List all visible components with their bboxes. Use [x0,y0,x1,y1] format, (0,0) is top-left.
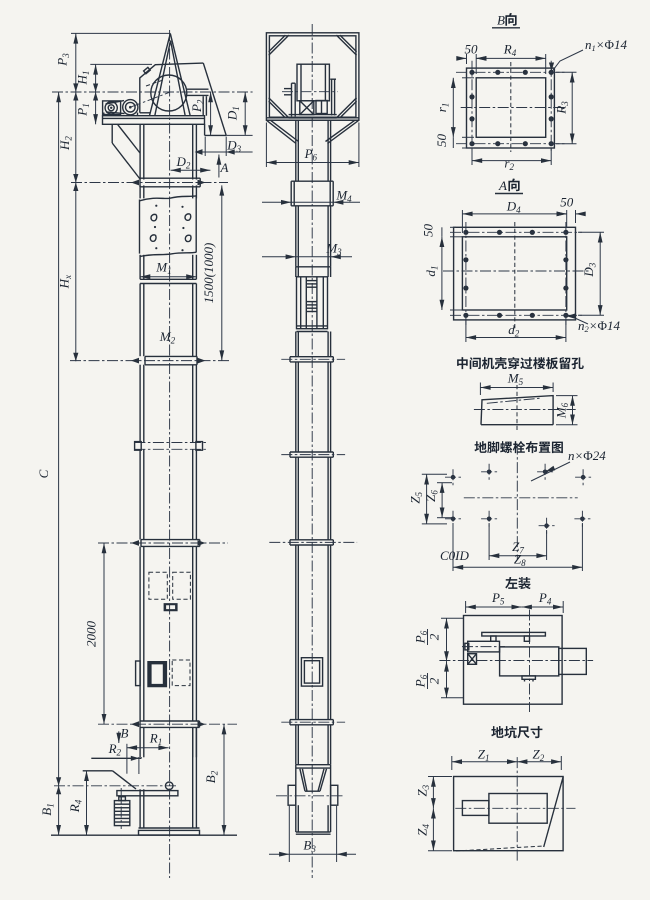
svg-text:R1: R1 [149,731,162,748]
svg-text:A: A [220,160,229,175]
svg-text:P3: P3 [54,53,71,67]
svg-text:A: A [498,178,507,193]
svg-text:M5: M5 [507,371,524,388]
svg-text:Z5: Z5 [407,491,424,503]
svg-text:50: 50 [560,195,574,210]
svg-text:M4: M4 [335,188,352,205]
svg-text:H1: H1 [75,71,92,86]
svg-text:r2: r2 [504,156,514,173]
svg-text:P5: P5 [491,590,505,607]
svg-text:D4: D4 [506,199,521,216]
svg-text:M2: M2 [159,329,176,346]
svg-text:C0ID: C0ID [440,548,470,563]
svg-text:2: 2 [427,677,442,684]
svg-text:n2×Φ14: n2×Φ14 [578,318,621,334]
svg-text:Z4: Z4 [414,824,431,836]
svg-text:1500(1000): 1500(1000) [201,243,216,304]
svg-text:50: 50 [420,224,435,238]
svg-text:50: 50 [465,42,479,57]
svg-text:Z3: Z3 [414,784,431,796]
svg-text:r1: r1 [434,103,451,113]
svg-text:R2: R2 [108,741,122,758]
svg-text:d2: d2 [508,322,520,339]
svg-text:B3: B3 [303,838,316,855]
svg-text:P4: P4 [538,590,552,607]
svg-text:D3: D3 [581,262,598,277]
svg-text:n×Φ24: n×Φ24 [568,448,606,463]
svg-text:D2: D2 [175,154,190,171]
svg-text:2: 2 [427,633,442,640]
svg-text:R3: R3 [554,101,571,115]
svg-text:d1: d1 [423,266,440,277]
svg-text:B: B [497,13,505,28]
svg-text:Z1: Z1 [478,747,490,764]
svg-text:2000: 2000 [84,621,99,648]
svg-text:P1: P1 [75,103,92,116]
svg-text:M1: M1 [155,260,171,277]
svg-text:R4: R4 [67,799,84,813]
svg-text:P6: P6 [304,146,318,163]
svg-text:Z2: Z2 [533,747,545,764]
svg-text:Z6: Z6 [423,490,440,502]
svg-text:50: 50 [434,134,449,148]
svg-text:C: C [36,469,51,478]
svg-text:B2: B2 [203,770,220,783]
svg-text:B: B [121,726,129,741]
svg-text:M3: M3 [325,241,342,258]
svg-text:Z8: Z8 [514,552,526,569]
svg-text:B1: B1 [39,803,56,815]
svg-text:P2: P2 [189,99,206,113]
svg-text:R4: R4 [503,42,517,59]
svg-text:D3: D3 [226,138,241,155]
svg-text:M6: M6 [554,402,571,419]
svg-text:H2: H2 [57,136,74,151]
svg-text:n1×Φ14: n1×Φ14 [585,37,628,53]
svg-text:D1: D1 [225,106,242,121]
